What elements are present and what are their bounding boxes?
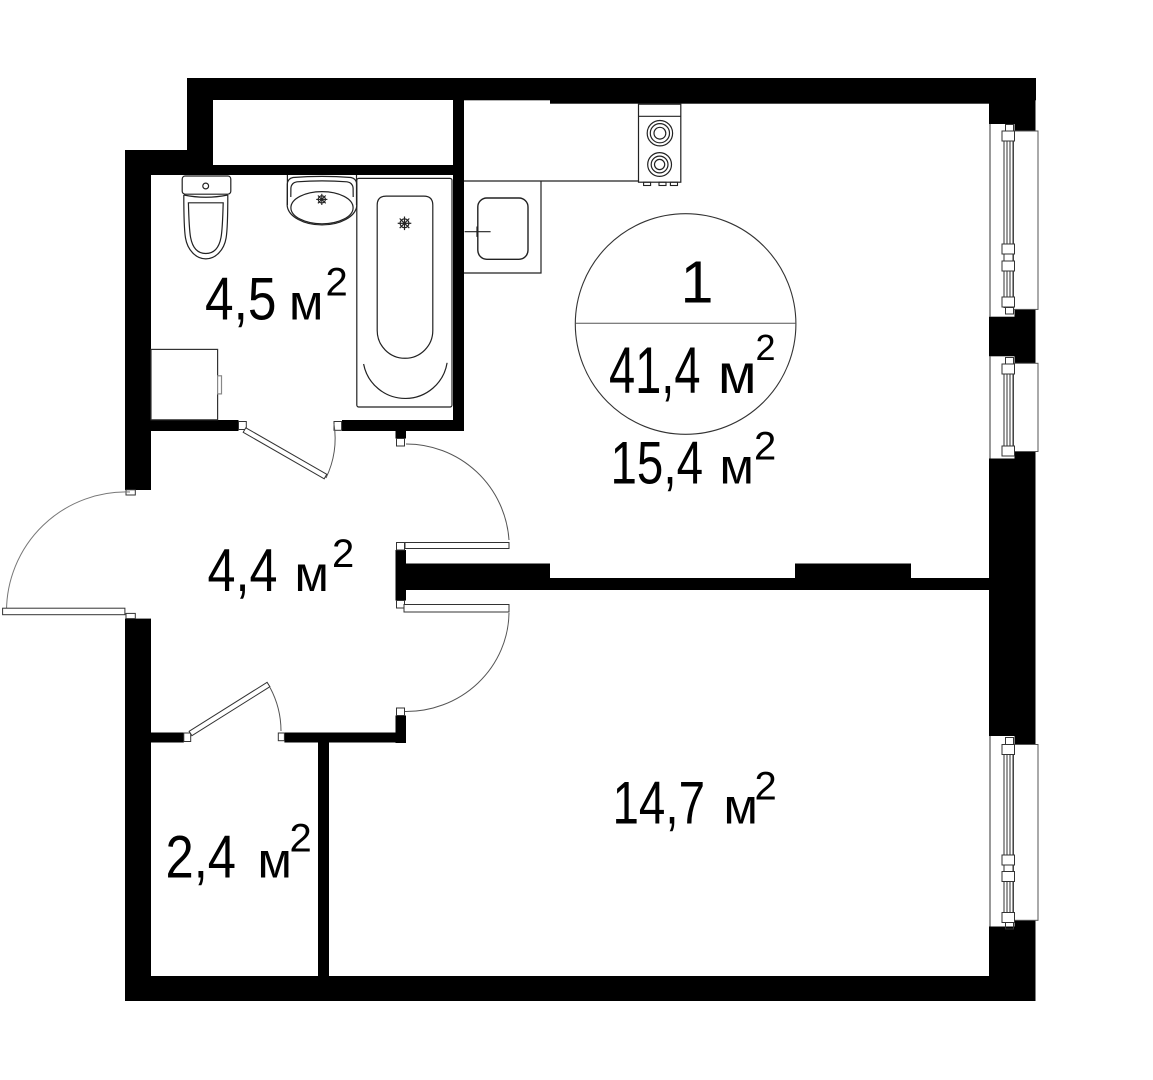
svg-text:м: м (724, 778, 758, 834)
svg-text:14,7: 14,7 (613, 769, 706, 836)
svg-text:2: 2 (290, 817, 312, 861)
svg-text:м: м (289, 275, 323, 331)
svg-text:м: м (720, 439, 754, 495)
svg-text:2,4: 2,4 (166, 823, 237, 890)
svg-text:2: 2 (756, 327, 776, 368)
svg-text:2: 2 (755, 764, 777, 808)
svg-text:2: 2 (326, 261, 348, 305)
svg-text:1: 1 (681, 249, 714, 315)
svg-text:м: м (258, 832, 292, 888)
svg-text:4,5: 4,5 (205, 266, 277, 333)
svg-text:15,4: 15,4 (611, 430, 704, 497)
svg-text:м: м (718, 342, 757, 405)
svg-text:41,4: 41,4 (609, 333, 701, 407)
svg-text:2: 2 (332, 532, 354, 576)
svg-text:4,4: 4,4 (208, 537, 278, 604)
svg-text:м: м (295, 546, 329, 602)
svg-text:2: 2 (754, 425, 776, 469)
